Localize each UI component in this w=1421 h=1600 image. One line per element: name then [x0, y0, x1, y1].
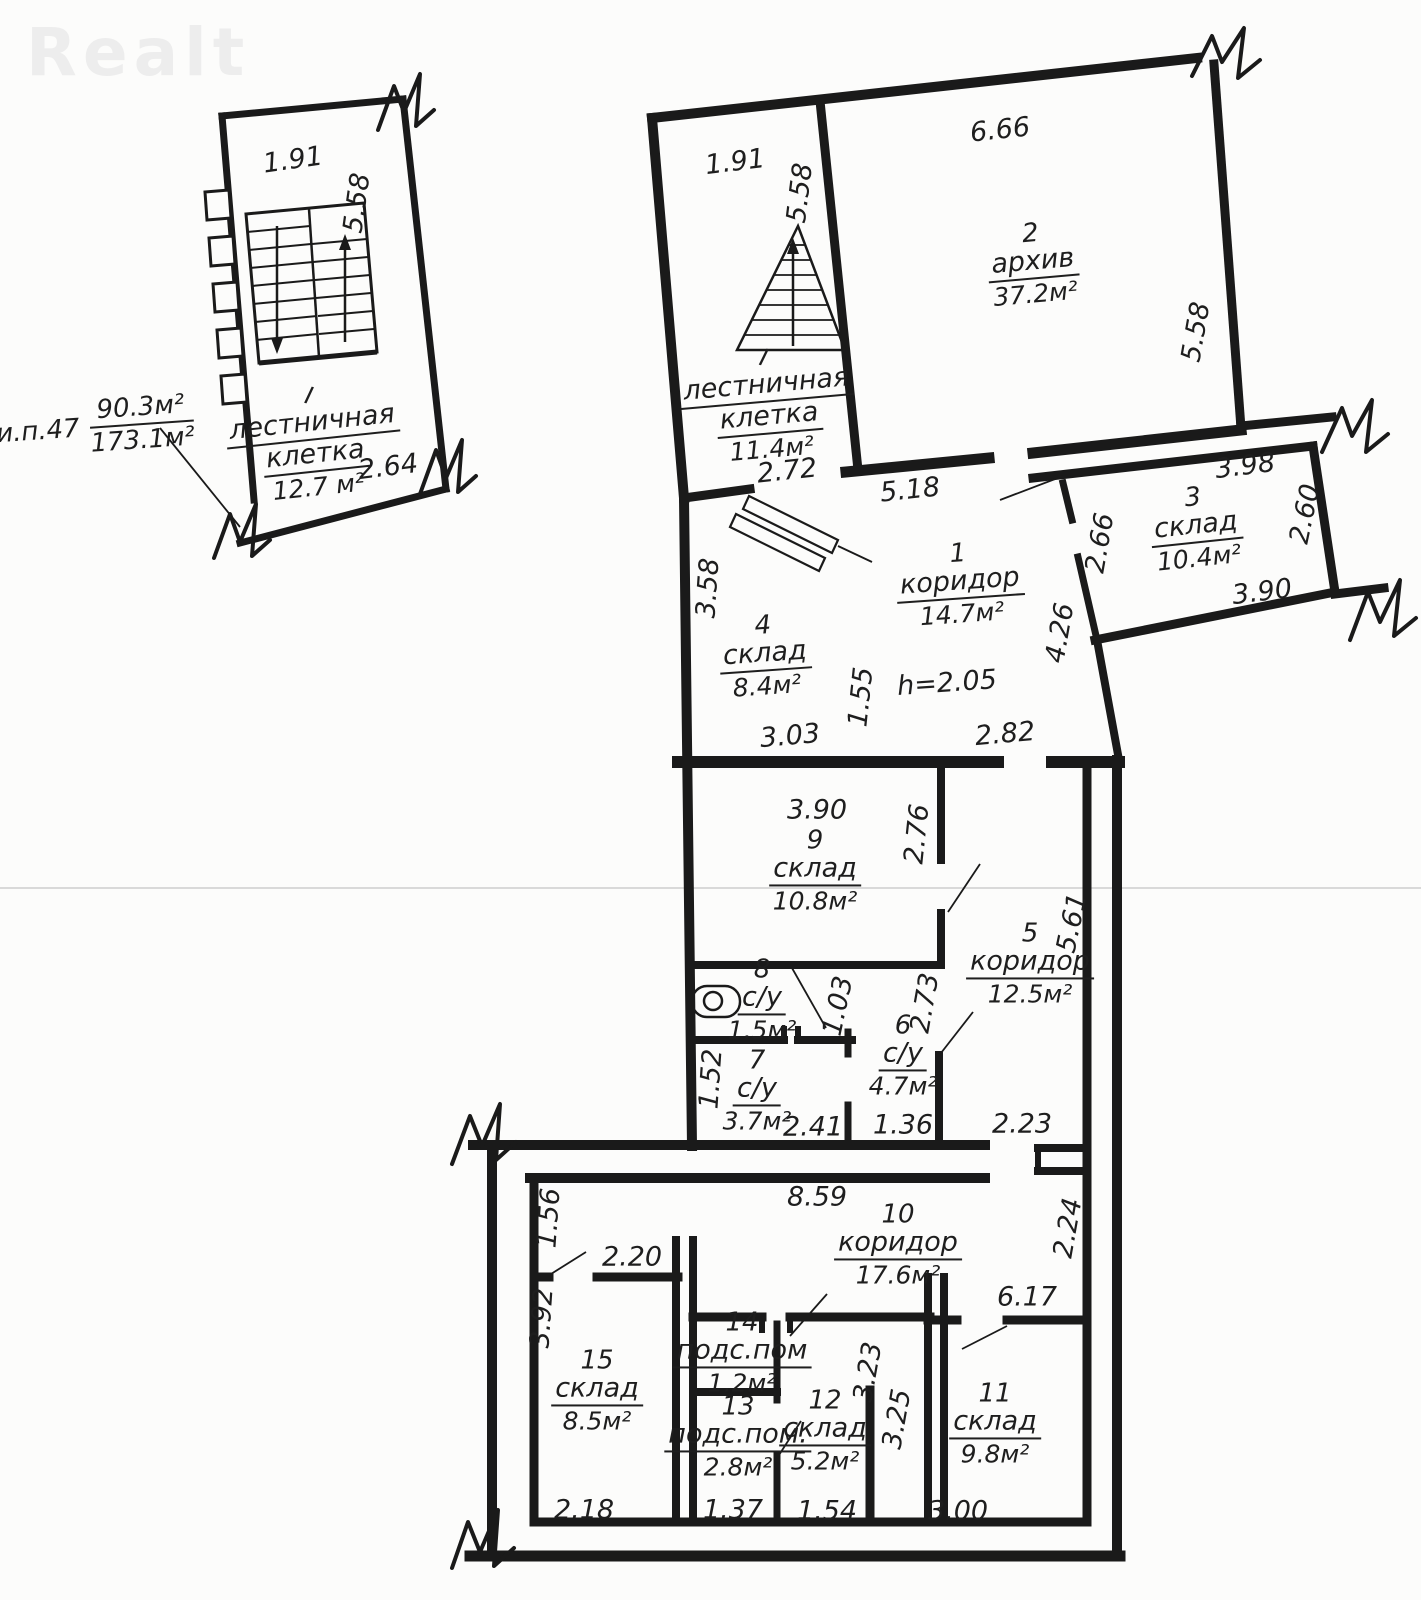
dim-155: 1.55 — [842, 665, 879, 728]
note-prefix: и.п.47 — [0, 413, 81, 449]
dim-223: 2.23 — [992, 1109, 1052, 1140]
door-leaves — [730, 496, 838, 571]
room-label-r4: 4 склад 8.4м² — [716, 609, 813, 702]
room-label-r11: 11 склад 9.8м² — [949, 1380, 1041, 1467]
dim-154: 1.54 — [797, 1496, 857, 1527]
room-label-r13: 13 подс.пом. 2.8м² — [664, 1393, 811, 1480]
dim-137: 1.37 — [703, 1495, 763, 1526]
room-label-r15: 15 склад 8.5м² — [551, 1347, 643, 1434]
dim-241: 2.41 — [783, 1112, 843, 1143]
dim-358: 3.58 — [690, 557, 725, 619]
room-label-r3: 3 склад 10.4м² — [1146, 480, 1246, 576]
room-label-r14: 14 подс.пом 1.2м² — [673, 1309, 812, 1396]
dim-220: 2.20 — [602, 1242, 662, 1273]
dim-518: 5.18 — [878, 471, 941, 508]
dim-390-s9: 3.90 — [787, 795, 847, 826]
dim-276: 2.76 — [898, 802, 935, 865]
room-label-r10: 10 коридор 17.6м² — [834, 1201, 962, 1288]
dim-303: 3.03 — [759, 718, 822, 754]
room-label-r2: 2 архив 37.2м² — [984, 217, 1082, 312]
room-label-r7: 7 с/у 3.7м² — [723, 1047, 792, 1134]
main-stairs-icon — [737, 226, 845, 350]
note-areas: 90.3м² 173.1м² — [87, 390, 195, 458]
room-label-r9: 9 склад 10.8м² — [769, 827, 861, 914]
dim-272: 2.72 — [755, 452, 818, 489]
dim-282: 2.82 — [974, 716, 1037, 752]
dim-666: 6.66 — [968, 111, 1031, 148]
dim-218: 2.18 — [554, 1495, 614, 1526]
dim-156: 1.56 — [531, 1187, 566, 1249]
room-label-stair: I лестничная клетка 11.4м² — [676, 338, 860, 470]
dim-617: 6.17 — [997, 1282, 1057, 1313]
small-stair-label: I лестничная клетка 12.7 м² — [221, 375, 406, 510]
room-label-r1: 1 коридор 14.7м² — [893, 536, 1027, 632]
dim-136: 1.36 — [873, 1110, 933, 1141]
dim-859: 8.59 — [787, 1182, 847, 1213]
dim-392: 3.92 — [524, 1287, 559, 1349]
room-label-r8: 8 с/у 1.5м² — [728, 956, 797, 1043]
dim-152: 1.52 — [693, 1048, 728, 1110]
floorplan-page: Realt — [0, 0, 1421, 1600]
dim-300: 3.00 — [928, 1496, 988, 1527]
